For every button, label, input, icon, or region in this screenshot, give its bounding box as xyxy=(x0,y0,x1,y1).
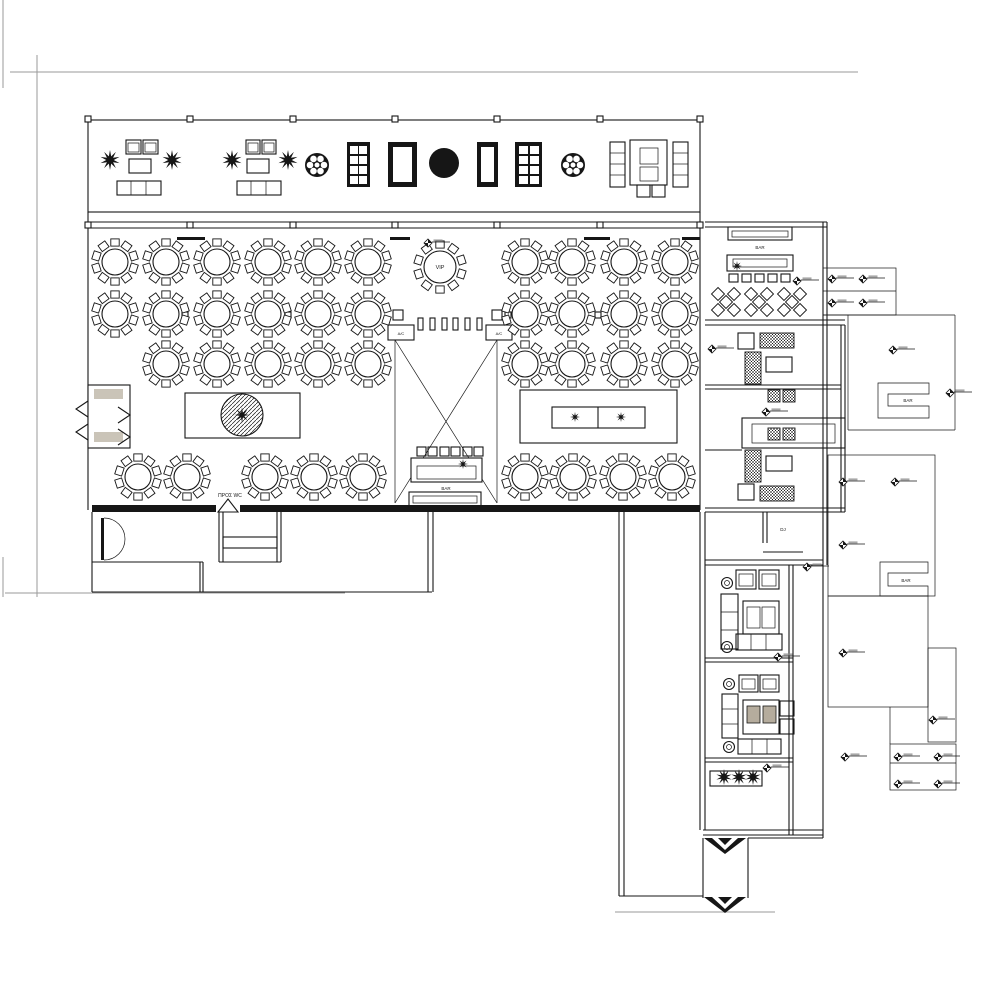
diamond-table-cluster xyxy=(778,288,807,317)
sofa-room-upper xyxy=(738,333,794,384)
dj-booth xyxy=(763,512,803,552)
elevation-marker xyxy=(828,275,854,283)
star-symbol xyxy=(732,261,742,271)
elevation-marker xyxy=(763,764,789,772)
shelf xyxy=(223,537,277,548)
round-table xyxy=(92,291,139,337)
round-table xyxy=(502,341,549,387)
elevation-marker xyxy=(762,408,788,416)
wheel-table xyxy=(561,153,585,177)
sofa-room-middle xyxy=(768,390,795,440)
door-arc xyxy=(104,539,125,560)
elevation-marker xyxy=(859,299,885,307)
round-table xyxy=(649,454,696,500)
round-column xyxy=(429,148,459,178)
round-table xyxy=(92,239,139,285)
ac-right-label: A/C xyxy=(496,331,503,336)
sofa-room-lower xyxy=(738,450,794,501)
round-table xyxy=(245,239,292,285)
coffee-table xyxy=(247,159,269,173)
lounge-set-1 xyxy=(117,140,161,195)
round-table xyxy=(291,454,338,500)
entry-mat xyxy=(94,389,123,399)
star-symbol xyxy=(616,412,626,422)
cushion xyxy=(763,706,776,723)
elevation-marker xyxy=(828,299,854,307)
sofa-group-right xyxy=(610,140,688,197)
stage-bar-label: BAR xyxy=(441,486,451,491)
ac-left-label: A/C xyxy=(398,331,405,336)
to-wc-label: ΠΡΟΣ WC xyxy=(218,493,242,499)
diamond-tables xyxy=(712,288,807,317)
elevation-marker xyxy=(946,389,972,397)
right-wing xyxy=(705,222,845,838)
door-arc xyxy=(104,518,125,539)
round-table xyxy=(601,341,648,387)
round-table xyxy=(295,239,342,285)
elevation-marker xyxy=(891,478,917,486)
lounge-set-2 xyxy=(237,140,281,195)
round-table xyxy=(652,341,699,387)
wheel-table xyxy=(305,153,329,177)
round-table xyxy=(345,291,392,337)
annex-bar-lower-label: BAR xyxy=(901,578,911,583)
star-symbol xyxy=(458,459,468,469)
round-table xyxy=(502,239,549,285)
round-table xyxy=(601,291,648,337)
diamond-table-cluster xyxy=(745,288,774,317)
round-table xyxy=(194,291,241,337)
star-symbol xyxy=(570,412,580,422)
corridor xyxy=(619,512,823,913)
section-break-marks xyxy=(704,838,746,913)
lower-rooms xyxy=(92,512,433,592)
door-swing xyxy=(76,424,88,440)
elevation-marker xyxy=(774,653,800,661)
stage-bar xyxy=(409,447,483,506)
door-panel-1 xyxy=(388,142,417,187)
annex-bar-upper-label: BAR xyxy=(903,398,913,403)
sofa xyxy=(237,181,281,195)
elevation-marker xyxy=(839,649,865,657)
round-table xyxy=(652,291,699,337)
round-table xyxy=(245,291,292,337)
planter xyxy=(222,150,241,170)
star-symbol xyxy=(235,408,250,423)
display-case-1 xyxy=(347,142,370,187)
round-table xyxy=(115,454,162,500)
round-table xyxy=(340,454,387,500)
elevation-marker xyxy=(889,346,915,354)
round-table xyxy=(143,341,190,387)
round-table xyxy=(502,454,549,500)
door-swing xyxy=(76,401,88,417)
round-table xyxy=(345,341,392,387)
round-table xyxy=(295,341,342,387)
round-table xyxy=(143,239,190,285)
elevation-marker xyxy=(839,478,865,486)
wing-bar-label: BAR xyxy=(755,245,765,250)
entrance-strip xyxy=(85,116,703,212)
elevation-marker xyxy=(803,563,829,571)
elevation-marker xyxy=(708,345,734,353)
column-markers-strip xyxy=(85,116,703,122)
planter xyxy=(162,150,181,170)
elevation-marker xyxy=(929,716,955,724)
round-table xyxy=(601,239,648,285)
round-table xyxy=(194,341,241,387)
wing-lounge-2 xyxy=(710,675,794,786)
elevation-marker xyxy=(894,753,920,761)
round-table xyxy=(550,454,597,500)
annex-rooms xyxy=(823,268,956,790)
round-table xyxy=(164,454,211,500)
elevation-marker xyxy=(841,753,867,761)
planter xyxy=(100,150,119,170)
floor-plan-drawing: VIP BAR ΠΡΟΣ WC A/C A/C BAR BAR BAR DJ xyxy=(0,0,1000,1000)
round-table xyxy=(295,291,342,337)
sofa xyxy=(117,181,161,195)
round-table xyxy=(549,341,596,387)
round-table xyxy=(652,239,699,285)
planter xyxy=(278,150,297,170)
display-case-2 xyxy=(515,142,542,187)
round-table xyxy=(549,239,596,285)
round-table xyxy=(600,454,647,500)
round-table xyxy=(549,291,596,337)
floor-plan-canvas: VIP BAR ΠΡΟΣ WC A/C A/C BAR BAR BAR DJ xyxy=(0,0,1000,1000)
wing-lounge-1 xyxy=(721,570,782,653)
round-table xyxy=(194,239,241,285)
diamond-table-cluster xyxy=(712,288,741,317)
round-table xyxy=(242,454,289,500)
elevation-marker xyxy=(839,541,865,549)
coffee-table xyxy=(129,159,151,173)
round-table xyxy=(345,239,392,285)
entry-mat xyxy=(94,432,123,442)
column-markers-hall xyxy=(85,222,703,228)
elevation-marker xyxy=(859,275,885,283)
elevation-marker xyxy=(793,277,819,285)
entrance-vestibule xyxy=(76,385,130,448)
buffet-platform xyxy=(520,390,677,443)
double-door-leaf xyxy=(101,518,104,560)
vip-label: VIP xyxy=(436,265,445,271)
elevation-marker xyxy=(894,780,920,788)
wing-bar-area xyxy=(727,227,793,282)
dj-label: DJ xyxy=(780,527,786,532)
round-table xyxy=(245,341,292,387)
cushion xyxy=(747,706,760,723)
door-panel-2 xyxy=(477,142,498,187)
